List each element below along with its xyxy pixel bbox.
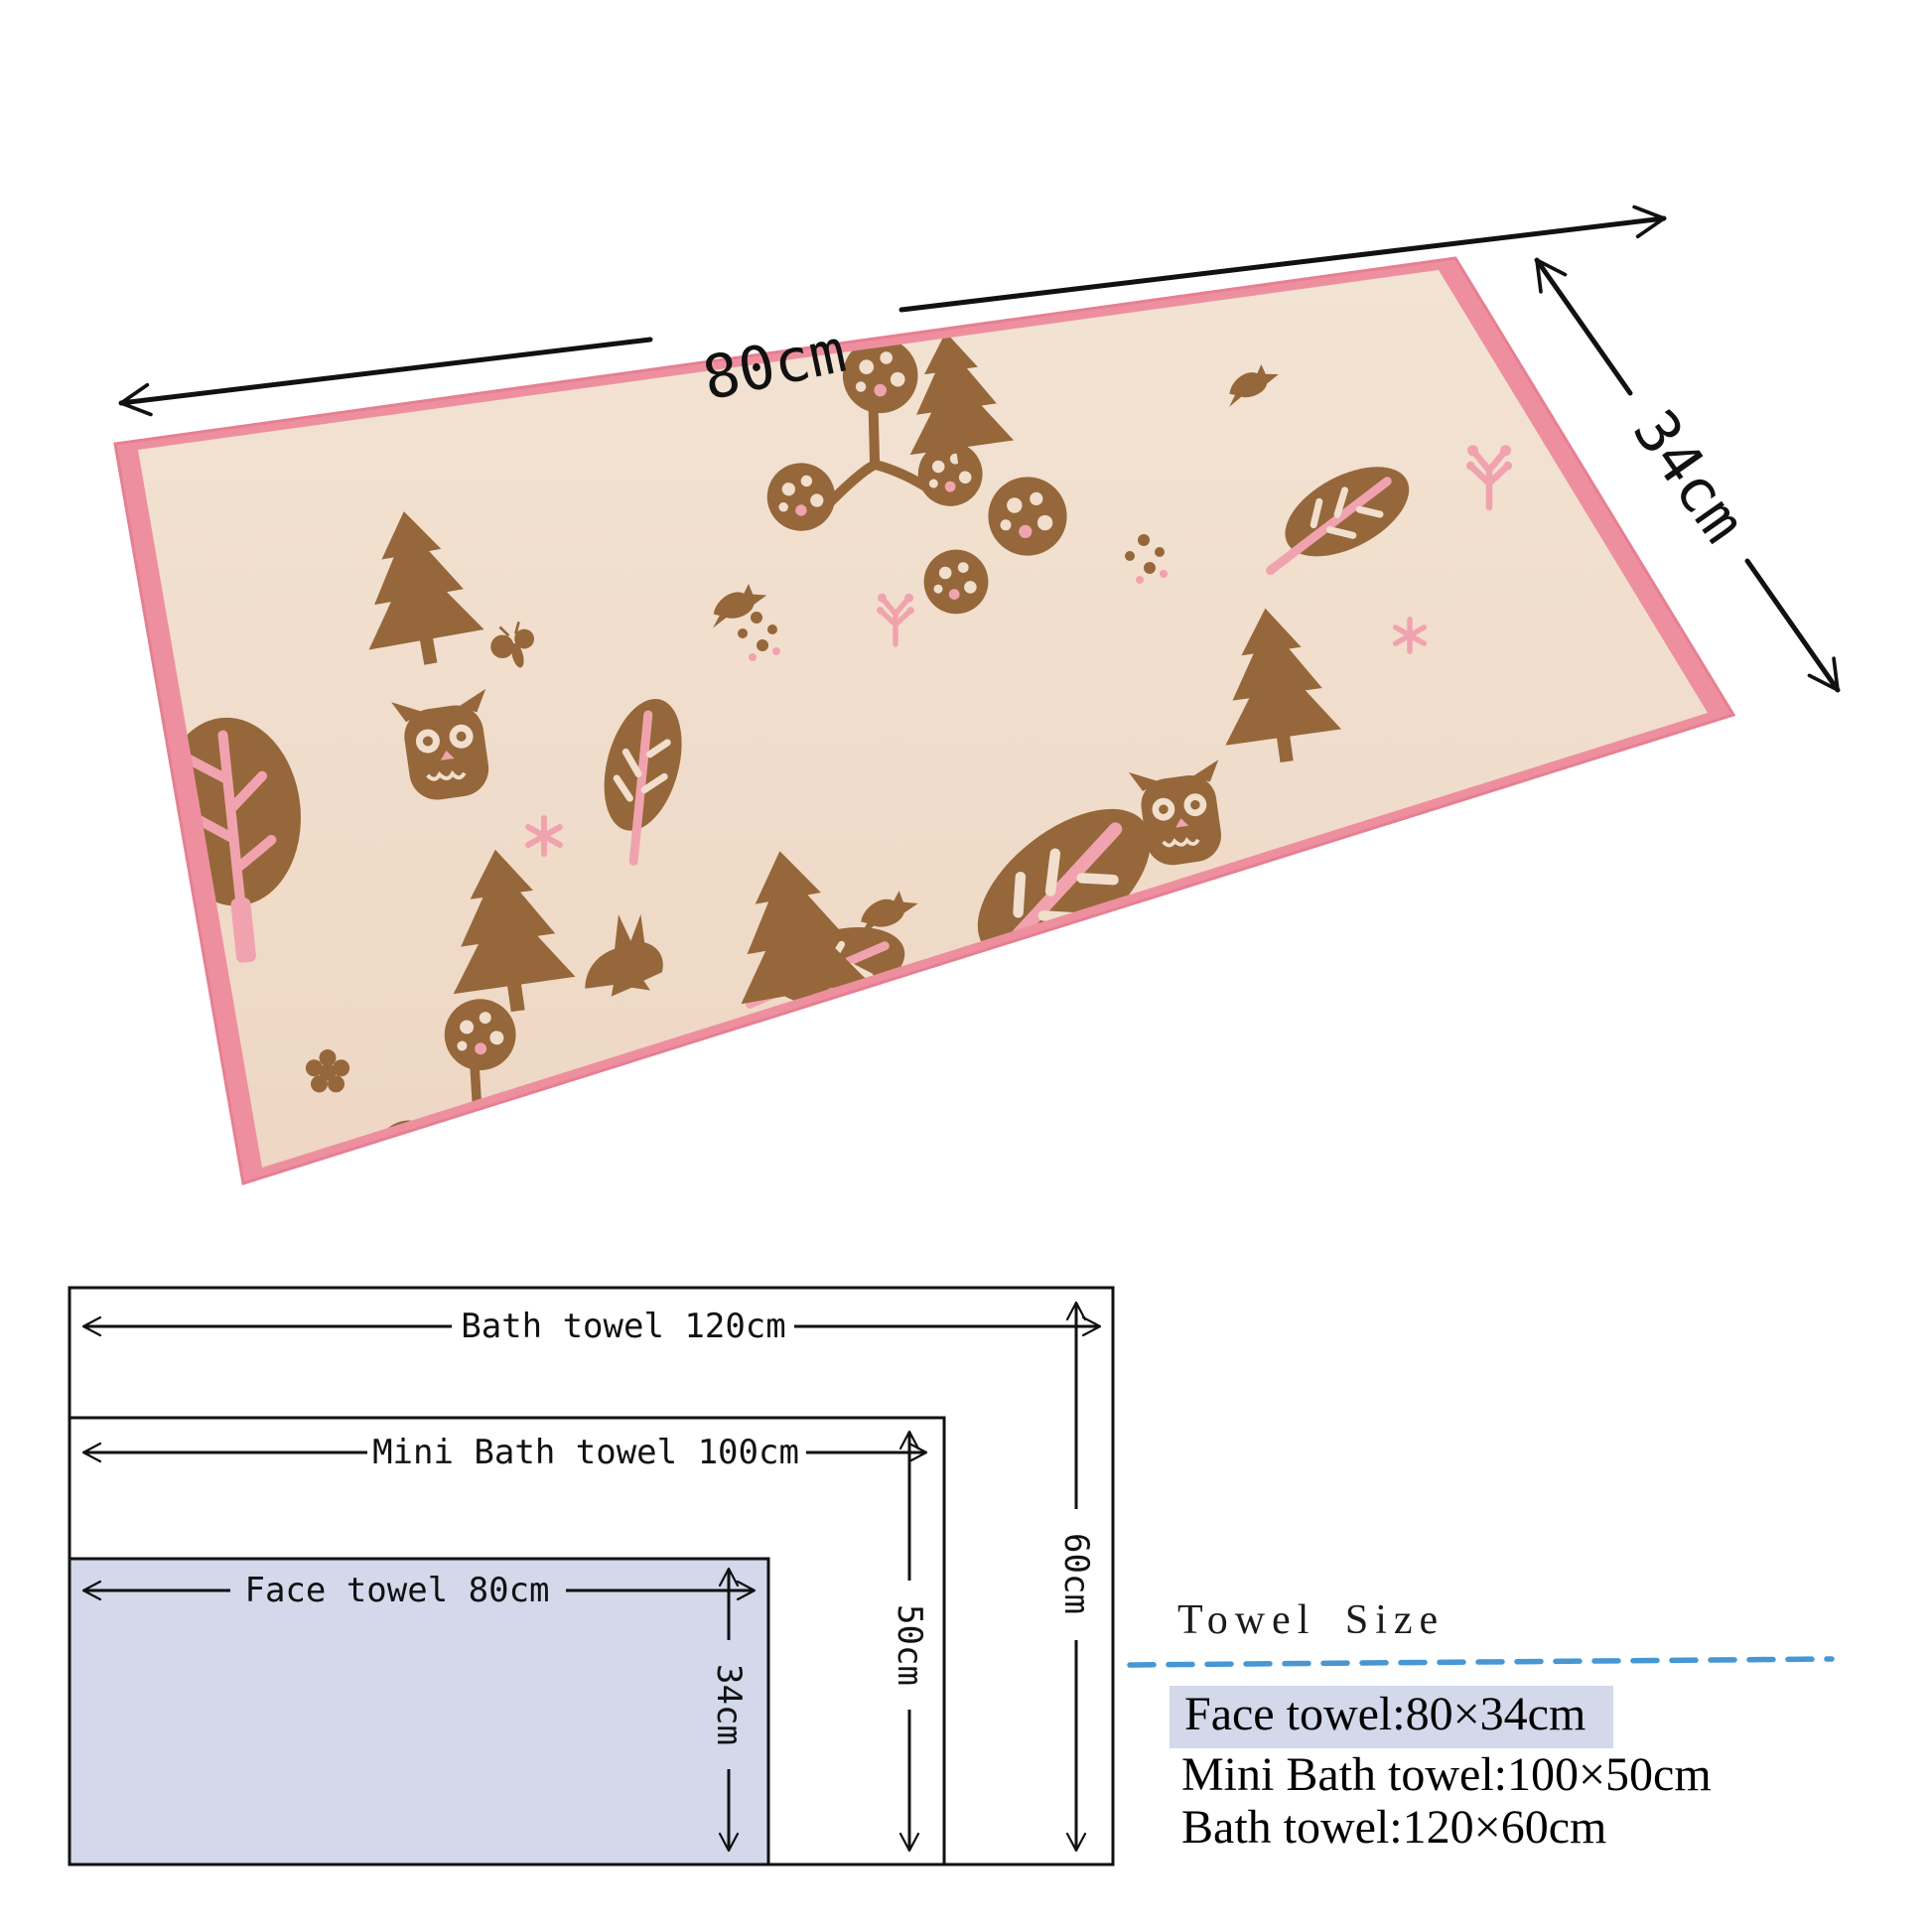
height-arrow-top-segment [1537, 260, 1630, 393]
size-diagram: Bath towel 120cm Mini Bath towel 100cm F… [69, 1288, 1113, 1864]
panel-title: Towel Size [1177, 1596, 1445, 1644]
face-height-label: 34cm [709, 1664, 749, 1745]
size-item-face-towel: Face towel:80×34cm [1170, 1686, 1613, 1748]
size-item-mini-bath-towel: Mini Bath towel:100×50cm [1181, 1749, 1712, 1802]
bath-height-label: 60cm [1056, 1533, 1096, 1614]
infographic-canvas: 80cm 34cm Bath towel 120cm Mini Bath tow… [0, 0, 1932, 1932]
photo-height-label: 34cm [1619, 398, 1758, 556]
berry-icon [988, 477, 1066, 555]
dashed-divider [1130, 1659, 1832, 1665]
flower-icon [578, 1073, 614, 1109]
bath-width-label: Bath towel 120cm [461, 1307, 786, 1346]
size-item-bath-towel: Bath towel:120×60cm [1181, 1802, 1606, 1855]
mini-width-label: Mini Bath towel 100cm [372, 1433, 799, 1472]
towel-size-infographic: 80cm 34cm Bath towel 120cm Mini Bath tow… [0, 0, 1932, 1932]
height-arrow-bottom-segment [1747, 561, 1838, 690]
towel-photo [115, 258, 1733, 1190]
mini-height-label: 50cm [890, 1604, 929, 1686]
berry-icon [924, 550, 989, 615]
face-width-label: Face towel 80cm [244, 1571, 549, 1610]
